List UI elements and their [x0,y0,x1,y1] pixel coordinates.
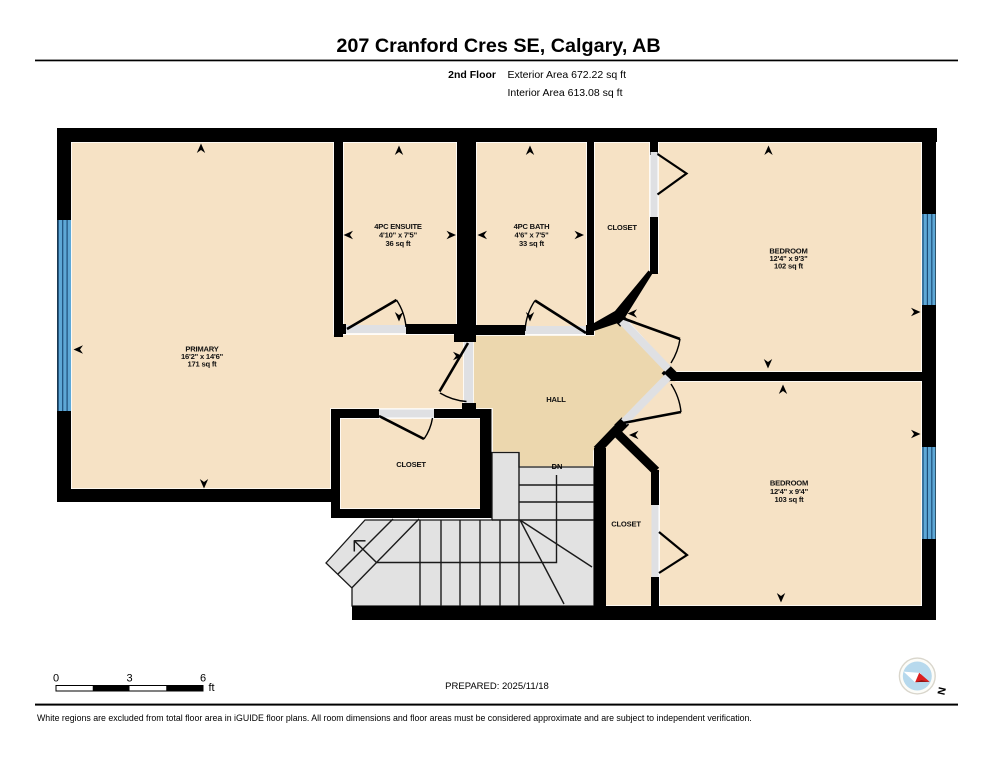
svg-text:6: 6 [200,673,206,685]
svg-text:171 sq ft: 171 sq ft [187,360,217,369]
svg-text:ft: ft [209,682,215,694]
svg-text:2nd Floor: 2nd Floor [448,69,496,81]
svg-text:CLOSET: CLOSET [611,520,641,529]
svg-text:White regions are excluded fro: White regions are excluded from total fl… [37,713,752,723]
svg-text:Interior Area 613.08 sq ft: Interior Area 613.08 sq ft [508,87,623,99]
svg-text:207 Cranford Cres SE, Calgary,: 207 Cranford Cres SE, Calgary, AB [336,35,660,57]
svg-text:102 sq ft: 102 sq ft [774,262,804,271]
svg-text:Exterior Area 672.22 sq ft: Exterior Area 672.22 sq ft [508,69,627,81]
svg-text:0: 0 [53,673,59,685]
svg-text:PREPARED: 2025/11/18: PREPARED: 2025/11/18 [445,681,549,692]
svg-text:33 sq ft: 33 sq ft [519,239,545,248]
svg-text:CLOSET: CLOSET [607,223,637,232]
svg-text:103 sq ft: 103 sq ft [774,495,804,504]
svg-text:3: 3 [126,673,132,685]
svg-text:CLOSET: CLOSET [396,460,426,469]
svg-text:36 sq ft: 36 sq ft [386,239,412,248]
svg-text:HALL: HALL [546,395,566,404]
svg-text:DN: DN [552,462,563,471]
